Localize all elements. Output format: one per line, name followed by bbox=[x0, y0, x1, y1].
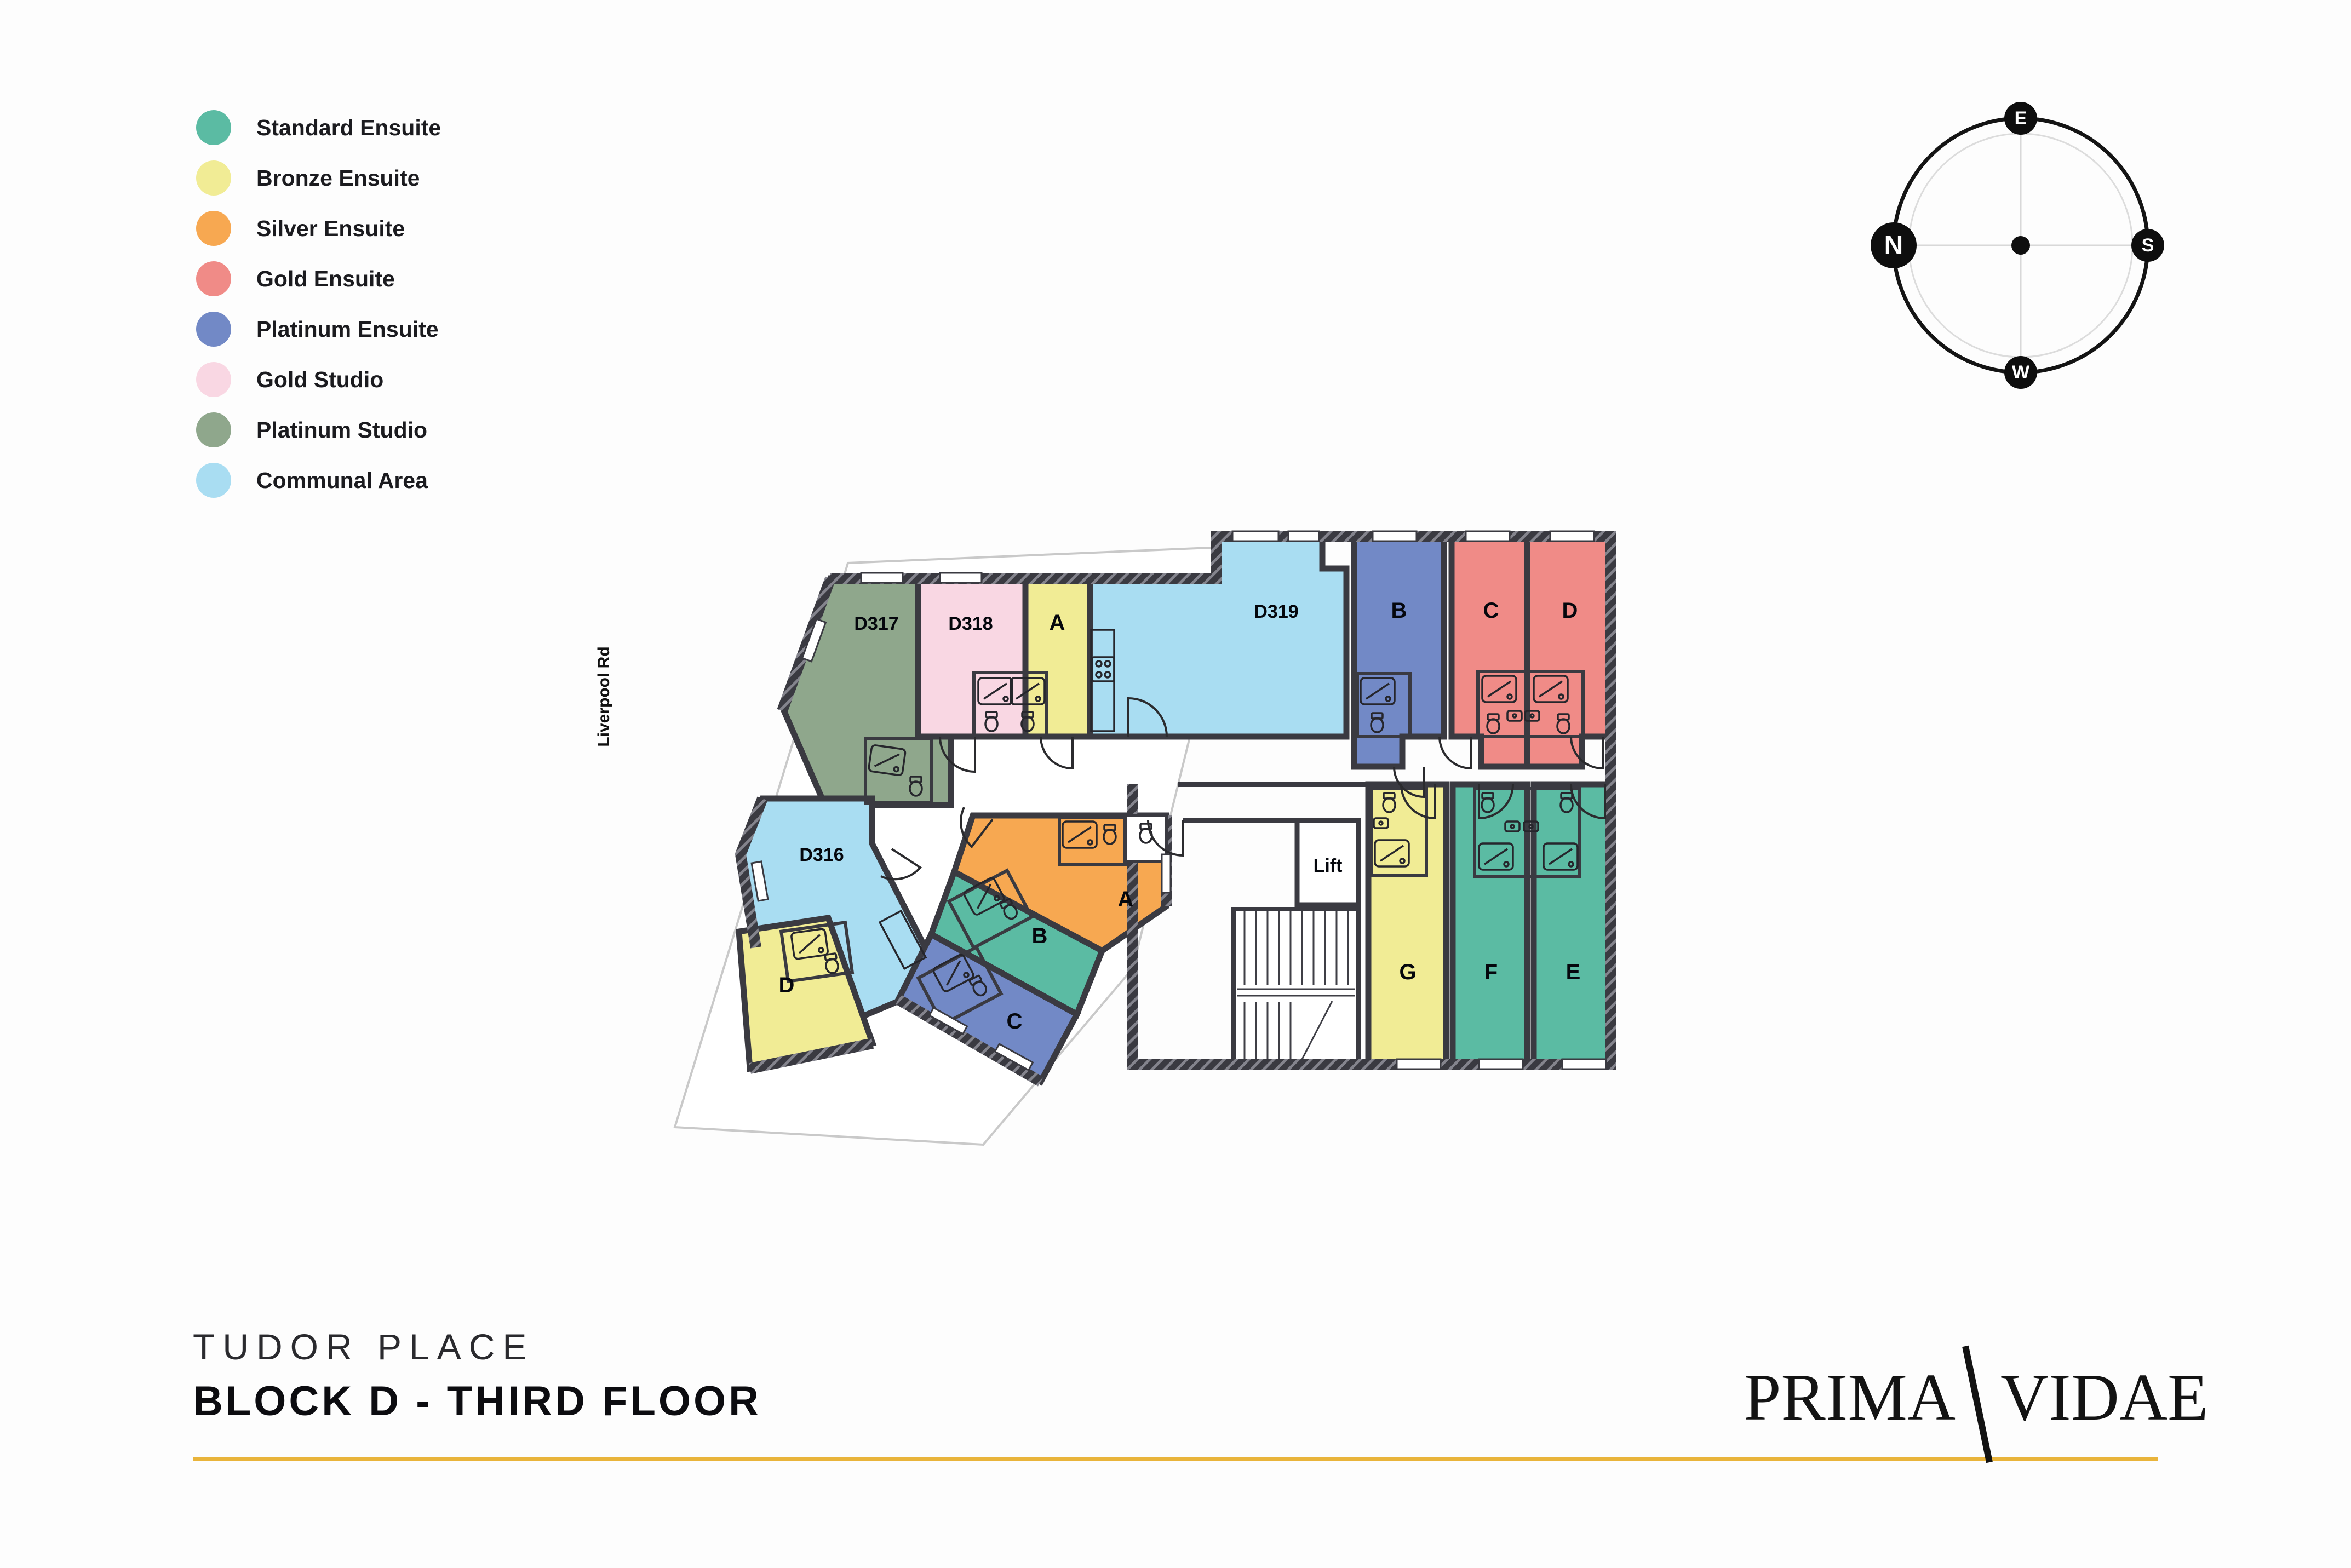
legend-swatch-bronze-ensuite bbox=[196, 160, 231, 196]
floorplan-sheet: Standard Ensuite Bronze Ensuite Silver E… bbox=[0, 0, 2351, 1568]
legend-label-platinum-studio: Platinum Studio bbox=[256, 417, 427, 443]
compass-center-dot bbox=[2011, 236, 2030, 255]
legend-label-silver-ensuite: Silver Ensuite bbox=[256, 216, 405, 241]
legend-swatch-silver-ensuite bbox=[196, 211, 231, 246]
development-name: TUDOR PLACE bbox=[193, 1326, 534, 1367]
room-d-top bbox=[1527, 537, 1610, 767]
room-d318 bbox=[918, 578, 1025, 737]
room-label-d317: D317 bbox=[854, 613, 898, 634]
window bbox=[1479, 1059, 1523, 1069]
legend-swatch-platinum-studio bbox=[196, 412, 231, 447]
room-label-d-lower: D bbox=[779, 973, 795, 997]
compass-north-label: N bbox=[1884, 231, 1903, 260]
room-e bbox=[1534, 784, 1610, 1065]
window bbox=[861, 573, 903, 583]
legend-swatch-standard-ensuite bbox=[196, 110, 231, 145]
room-f bbox=[1453, 784, 1527, 1065]
room-label-g: G bbox=[1399, 960, 1416, 984]
room-g bbox=[1368, 784, 1446, 1065]
legend-label-platinum-ensuite: Platinum Ensuite bbox=[256, 317, 439, 342]
legend-swatch-gold-ensuite bbox=[196, 261, 231, 296]
street-label: Liverpool Rd bbox=[595, 646, 613, 746]
room-label-d318: D318 bbox=[948, 613, 993, 634]
legend-label-gold-studio: Gold Studio bbox=[256, 367, 383, 392]
compass-east-label: E bbox=[2015, 108, 2027, 129]
room-label-d319: D319 bbox=[1254, 601, 1298, 622]
room-label-c-top: C bbox=[1483, 599, 1499, 623]
window bbox=[1466, 531, 1510, 541]
room-label-d316: D316 bbox=[799, 845, 844, 865]
staircase bbox=[1234, 909, 1358, 1065]
legend-label-communal-area: Communal Area bbox=[256, 468, 428, 493]
page-title: BLOCK D - THIRD FLOOR bbox=[193, 1378, 761, 1425]
room-label-b-lower: B bbox=[1032, 924, 1048, 948]
brand-word-vidae: VIDAE bbox=[2000, 1360, 2208, 1434]
room-label-c-lower: C bbox=[1007, 1009, 1023, 1033]
room-label-a-top: A bbox=[1050, 611, 1065, 635]
window bbox=[1397, 1059, 1441, 1069]
window bbox=[1562, 1059, 1606, 1069]
room-label-a-lower: A bbox=[1118, 887, 1134, 911]
legend-swatch-platinum-ensuite bbox=[196, 312, 231, 347]
window bbox=[1373, 531, 1417, 541]
window bbox=[1232, 531, 1278, 541]
legend-label-bronze-ensuite: Bronze Ensuite bbox=[256, 165, 420, 191]
compass-west-label: W bbox=[2012, 362, 2030, 383]
window bbox=[940, 573, 982, 583]
room-label-b-top: B bbox=[1391, 599, 1407, 623]
room-b-top bbox=[1354, 537, 1444, 767]
room-label-d-top: D bbox=[1562, 599, 1578, 623]
room-label-f: F bbox=[1484, 960, 1498, 984]
room-label-e: E bbox=[1566, 960, 1581, 984]
legend-swatch-gold-studio bbox=[196, 362, 231, 397]
legend-label-gold-ensuite: Gold Ensuite bbox=[256, 266, 395, 291]
legend-label-standard-ensuite: Standard Ensuite bbox=[256, 115, 441, 140]
window bbox=[1550, 531, 1594, 541]
ensuite-white bbox=[1125, 815, 1167, 861]
room-a-top bbox=[1025, 578, 1090, 737]
legend-swatch-communal-area bbox=[196, 463, 231, 498]
compass-south-label: S bbox=[2142, 235, 2154, 256]
window bbox=[1288, 531, 1319, 541]
window bbox=[1162, 854, 1171, 893]
lift-label: Lift bbox=[1314, 855, 1343, 876]
brand-word-prima: PRIMA bbox=[1744, 1360, 1956, 1434]
